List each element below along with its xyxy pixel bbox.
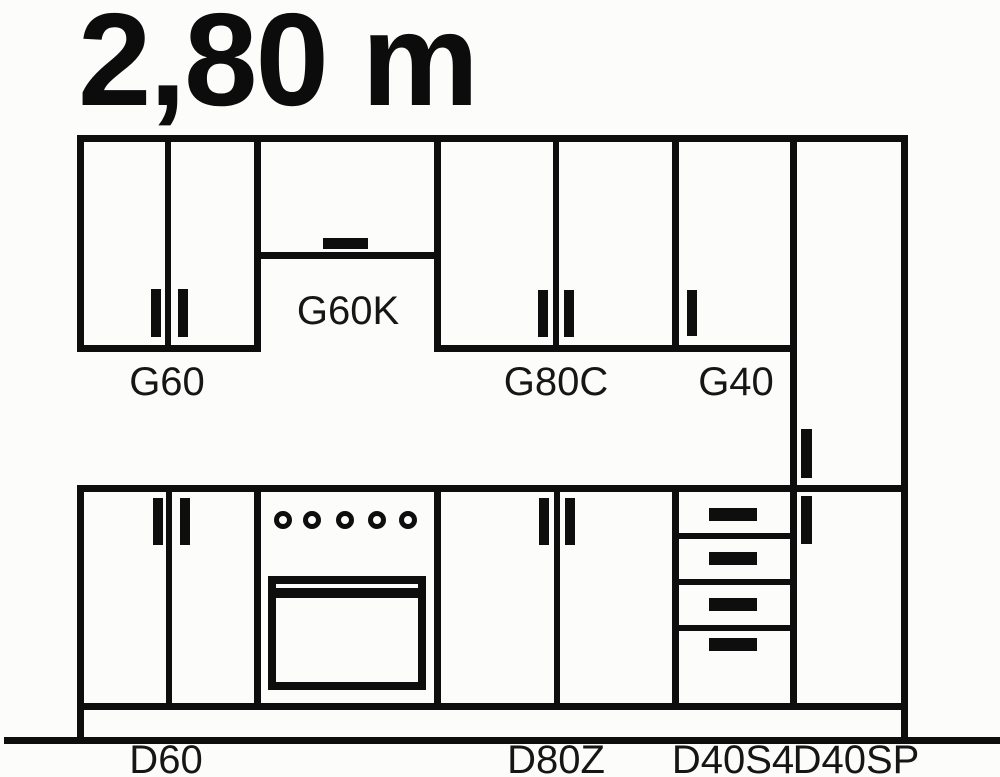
drawer-handle	[709, 598, 757, 611]
cabinet-d60-door-divider	[166, 492, 172, 703]
door-handle	[687, 290, 697, 336]
stove-knob-icon	[274, 511, 292, 529]
oven-handle	[276, 588, 418, 598]
door-handle	[565, 498, 575, 545]
drawer-divider	[679, 625, 790, 631]
kitchen-diagram: 2,80 m G60 G60K G80C G40 D60	[0, 0, 1000, 777]
stove-knob-icon	[336, 511, 354, 529]
cabinet-d80z-door-divider	[554, 492, 560, 703]
label-d40sp: D40SP	[793, 740, 920, 777]
drawer-handle	[709, 508, 757, 521]
cabinet-g60-door-divider	[165, 142, 171, 345]
label-d40s4: D40S4	[672, 740, 794, 777]
door-handle	[801, 496, 812, 544]
drawer-handle	[709, 638, 757, 651]
cabinet-g80c-door-divider	[553, 142, 559, 345]
label-d60: D60	[129, 740, 202, 777]
dimension-label: 2,80 m	[78, 0, 477, 126]
door-handle	[180, 498, 190, 545]
door-handle	[151, 289, 161, 337]
cabinet-d40sp	[790, 135, 908, 710]
cabinet-d40sp-door-divider	[790, 485, 908, 492]
door-handle	[153, 498, 163, 545]
plinth-side	[77, 703, 84, 740]
stove-knob-icon	[303, 511, 321, 529]
door-handle	[539, 498, 549, 545]
drawer-divider	[679, 533, 790, 539]
door-handle	[538, 290, 548, 337]
stove-knob-icon	[368, 511, 386, 529]
label-g40: G40	[698, 362, 774, 402]
door-handle	[178, 289, 188, 337]
stove-knob-icon	[399, 511, 417, 529]
label-g80c: G80C	[504, 362, 609, 402]
plinth-side	[901, 703, 908, 740]
door-handle	[564, 290, 574, 337]
label-d80z: D80Z	[507, 740, 605, 777]
label-g60k: G60K	[297, 291, 399, 331]
door-handle-horizontal	[323, 238, 368, 249]
drawer-handle	[709, 552, 757, 565]
drawer-divider	[679, 579, 790, 585]
label-g60: G60	[129, 362, 205, 402]
door-handle	[801, 429, 812, 478]
